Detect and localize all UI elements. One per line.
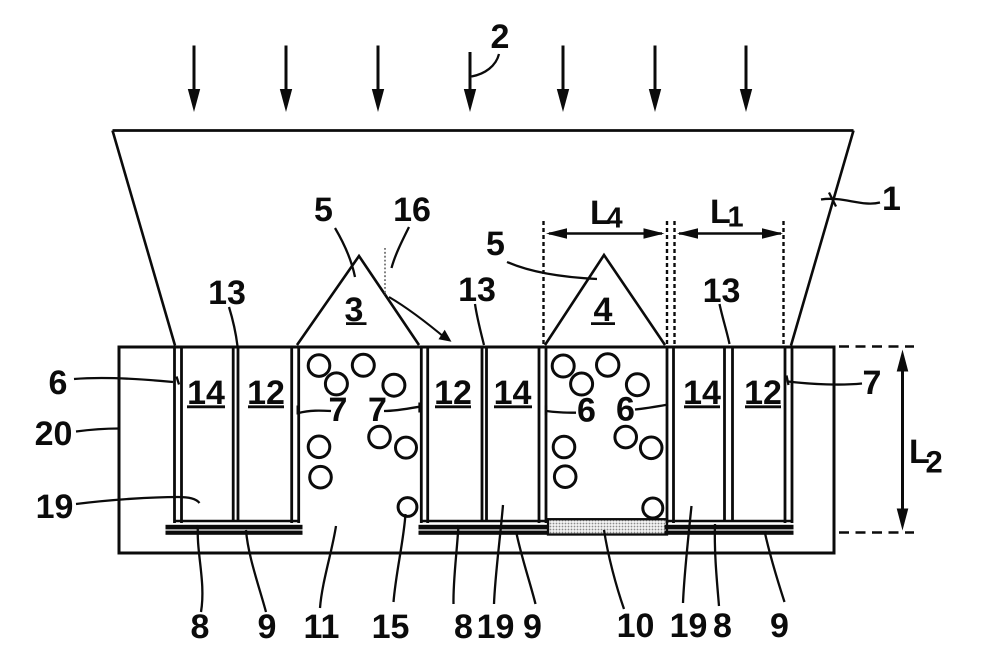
- svg-text:19: 19: [36, 488, 74, 526]
- svg-text:9: 9: [258, 608, 277, 646]
- svg-text:13: 13: [208, 274, 246, 312]
- svg-text:15: 15: [372, 608, 410, 646]
- svg-text:6: 6: [616, 391, 635, 429]
- svg-text:7: 7: [329, 391, 348, 429]
- svg-text:8: 8: [454, 608, 473, 646]
- svg-text:1: 1: [728, 202, 744, 234]
- svg-text:8: 8: [713, 607, 732, 645]
- svg-text:6: 6: [49, 364, 68, 402]
- svg-text:13: 13: [458, 271, 496, 309]
- svg-text:6: 6: [577, 392, 596, 430]
- svg-text:16: 16: [393, 191, 431, 229]
- svg-text:10: 10: [617, 607, 655, 645]
- svg-text:9: 9: [523, 608, 542, 646]
- svg-text:5: 5: [314, 191, 333, 229]
- svg-text:19: 19: [670, 607, 708, 645]
- svg-text:13: 13: [703, 272, 741, 310]
- svg-text:9: 9: [770, 607, 789, 645]
- svg-text:2: 2: [491, 18, 510, 56]
- svg-text:5: 5: [486, 225, 505, 263]
- svg-text:20: 20: [35, 415, 73, 453]
- svg-text:7: 7: [863, 364, 882, 402]
- svg-text:8: 8: [191, 608, 210, 646]
- svg-text:19: 19: [477, 608, 515, 646]
- svg-text:1: 1: [882, 180, 901, 218]
- svg-text:4: 4: [607, 203, 623, 235]
- svg-text:2: 2: [926, 445, 943, 480]
- svg-text:11: 11: [304, 608, 340, 646]
